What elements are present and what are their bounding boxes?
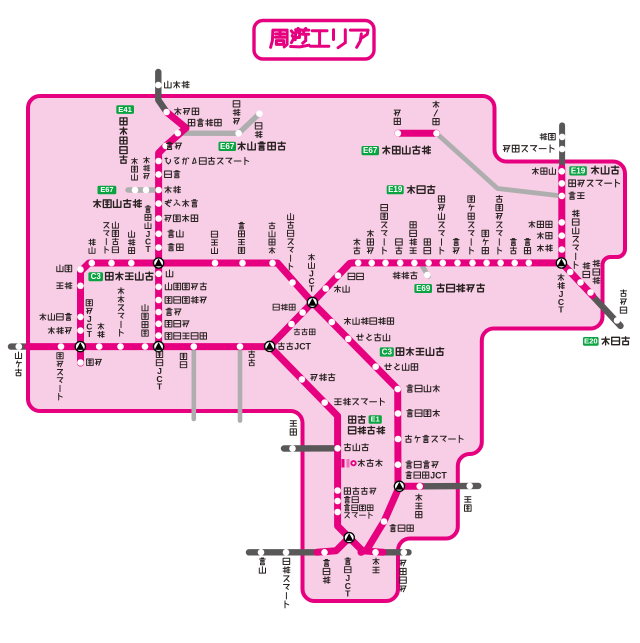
svg-text:T: T xyxy=(145,244,151,254)
svg-text:E41: E41 xyxy=(118,105,132,114)
svg-text:E1: E1 xyxy=(371,415,380,424)
svg-text:T: T xyxy=(345,589,351,599)
svg-text:E67: E67 xyxy=(363,146,378,155)
svg-text:T: T xyxy=(558,305,564,315)
svg-text:T: T xyxy=(157,382,163,392)
svg-text:T: T xyxy=(309,284,315,294)
svg-text:T: T xyxy=(87,329,93,339)
svg-text:E19: E19 xyxy=(571,167,586,176)
svg-text:JCT: JCT xyxy=(430,470,447,480)
svg-text:E67: E67 xyxy=(220,142,235,151)
svg-text:JCT: JCT xyxy=(294,342,311,352)
svg-text:E69: E69 xyxy=(416,284,431,293)
svg-text:C3: C3 xyxy=(382,348,393,357)
svg-text:E67: E67 xyxy=(100,185,113,194)
svg-text:E19: E19 xyxy=(388,185,403,194)
svg-text:C3: C3 xyxy=(91,272,102,281)
svg-text:E20: E20 xyxy=(584,337,598,346)
